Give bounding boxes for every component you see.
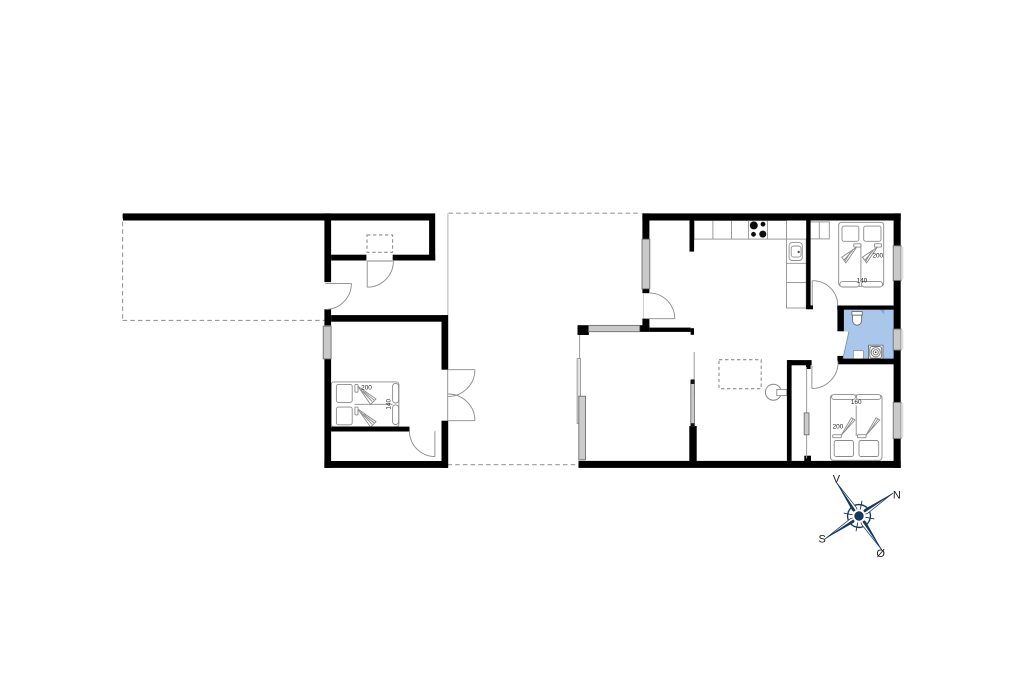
svg-text:V: V [833, 474, 841, 486]
svg-text:140: 140 [857, 278, 868, 285]
svg-text:140: 140 [385, 399, 392, 410]
svg-text:Ø: Ø [876, 548, 885, 560]
svg-text:N: N [893, 490, 901, 502]
svg-text:200: 200 [361, 384, 372, 391]
svg-text:200: 200 [872, 252, 883, 259]
svg-text:160: 160 [851, 399, 862, 406]
svg-text:200: 200 [833, 424, 844, 431]
svg-text:S: S [819, 534, 826, 546]
